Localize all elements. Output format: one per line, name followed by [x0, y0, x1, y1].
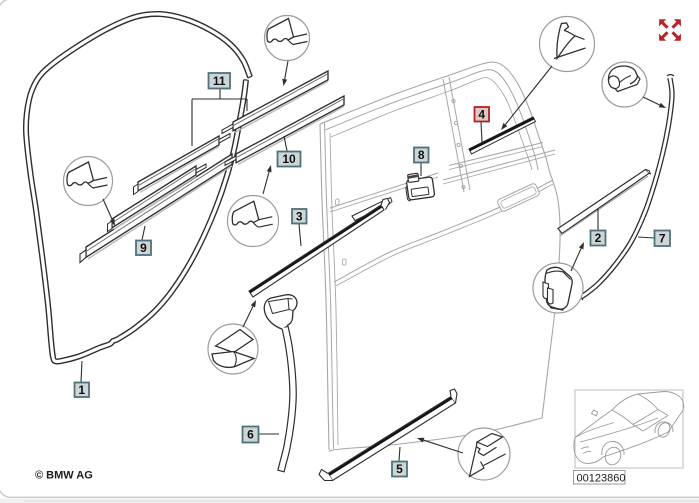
svg-text:10: 10: [282, 152, 296, 166]
svg-text:4: 4: [478, 107, 485, 121]
svg-text:9: 9: [140, 241, 147, 255]
svg-text:5: 5: [396, 462, 403, 476]
svg-text:8: 8: [418, 148, 425, 162]
svg-text:6: 6: [247, 428, 254, 442]
svg-text:1: 1: [78, 383, 85, 397]
svg-text:11: 11: [213, 74, 226, 88]
svg-text:7: 7: [659, 231, 666, 245]
svg-text:© BMW AG: © BMW AG: [35, 470, 93, 482]
svg-text:2: 2: [595, 231, 602, 245]
svg-text:3: 3: [296, 209, 303, 223]
svg-text:00123860: 00123860: [577, 473, 626, 485]
